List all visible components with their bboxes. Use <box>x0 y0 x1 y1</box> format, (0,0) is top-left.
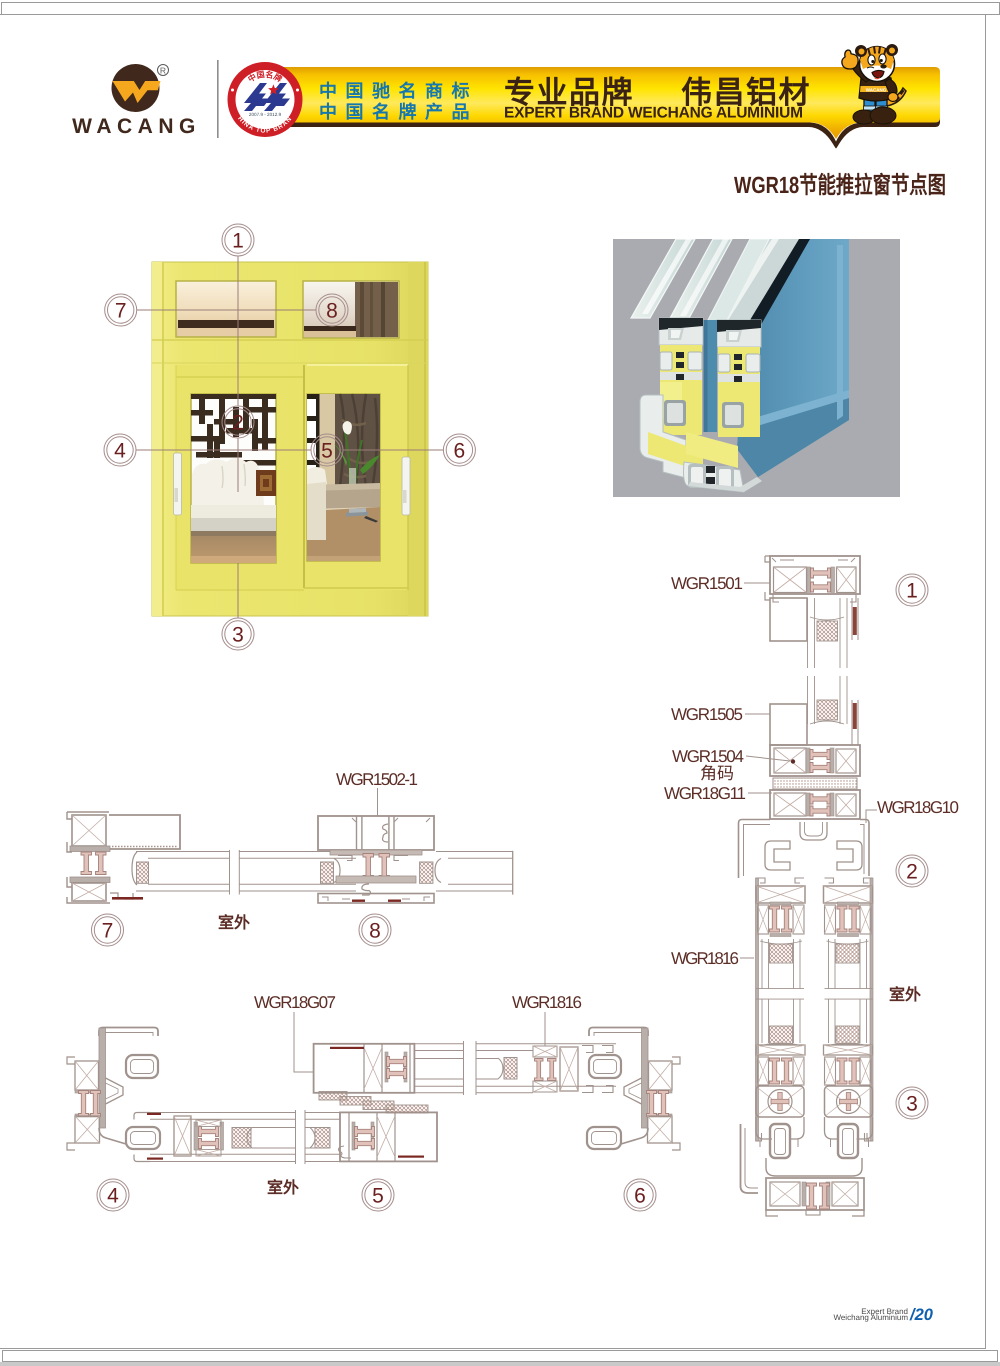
svg-text:WGR18G11: WGR18G11 <box>664 784 746 803</box>
svg-text:WACANG: WACANG <box>72 115 201 138</box>
svg-text:5: 5 <box>321 440 333 463</box>
svg-text:3: 3 <box>232 624 244 647</box>
svg-text:室外: 室外 <box>267 1179 299 1197</box>
svg-text:R: R <box>160 66 166 76</box>
svg-text:7: 7 <box>102 920 114 943</box>
svg-text:WGR1501: WGR1501 <box>671 574 743 593</box>
svg-text:2: 2 <box>232 412 244 435</box>
svg-text:WGR1502-1: WGR1502-1 <box>336 770 418 789</box>
svg-text:4: 4 <box>114 440 126 463</box>
svg-text:8: 8 <box>369 920 381 943</box>
svg-text:8: 8 <box>326 300 338 323</box>
svg-text:2: 2 <box>906 861 918 884</box>
svg-text:室外: 室外 <box>889 986 921 1004</box>
svg-text:WACANG: WACANG <box>866 88 887 93</box>
svg-text:6: 6 <box>454 440 466 463</box>
svg-text:3: 3 <box>906 1093 918 1116</box>
svg-text:7: 7 <box>115 300 127 323</box>
svg-text:中国驰名商标: 中国驰名商标 <box>319 81 478 101</box>
svg-text:WGR1505: WGR1505 <box>671 705 743 724</box>
svg-text:WGR18G07: WGR18G07 <box>254 993 336 1012</box>
svg-text:2007.9 - 2012.9: 2007.9 - 2012.9 <box>249 112 282 117</box>
svg-text:WGR18G10: WGR18G10 <box>877 798 959 817</box>
svg-text:1: 1 <box>232 230 244 253</box>
svg-text:EXPERT BRAND WEICHANG ALUMINIU: EXPERT BRAND WEICHANG ALUMINIUM <box>504 105 803 122</box>
svg-text:WGR1816: WGR1816 <box>671 949 739 968</box>
svg-text:WGR1816: WGR1816 <box>512 993 582 1012</box>
svg-text:角码: 角码 <box>700 764 734 783</box>
svg-text:6: 6 <box>634 1185 646 1208</box>
svg-text:1: 1 <box>906 580 918 603</box>
svg-text:中国名牌产品: 中国名牌产品 <box>319 102 478 122</box>
svg-text:室外: 室外 <box>218 914 250 932</box>
svg-text:4: 4 <box>107 1185 119 1208</box>
svg-text:5: 5 <box>372 1185 384 1208</box>
svg-text:WGR18节能推拉窗节点图: WGR18节能推拉窗节点图 <box>734 172 946 198</box>
